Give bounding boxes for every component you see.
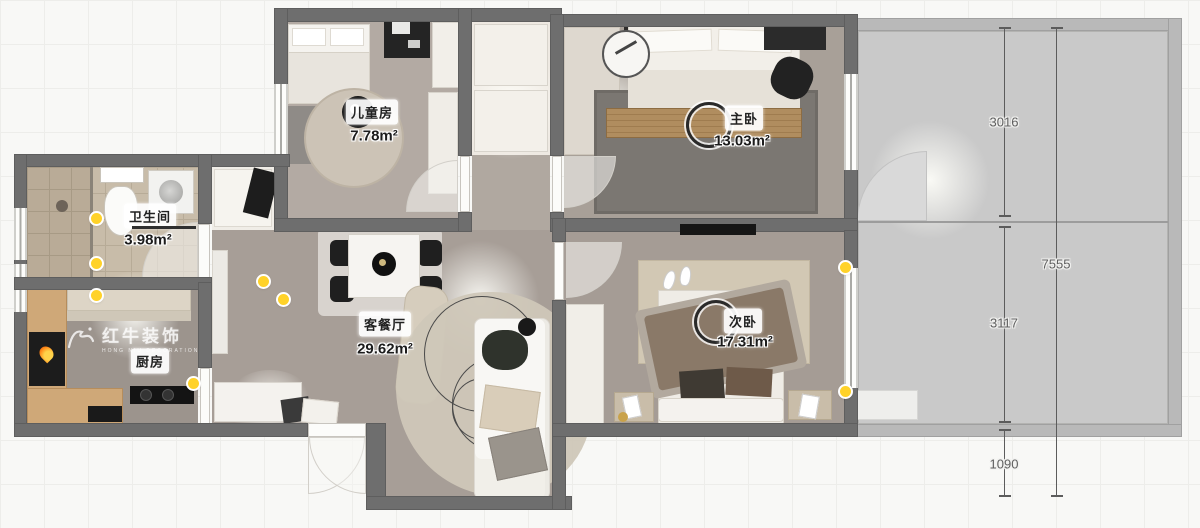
entry-door-sill <box>308 423 366 437</box>
room-area-kids: 7.78m² <box>350 128 398 145</box>
kids-bed-pillow <box>330 28 364 46</box>
light-dot <box>258 276 269 287</box>
bathroom-sink <box>100 167 144 183</box>
room-label-master: 主卧 <box>725 106 763 131</box>
window-bath-left <box>14 208 27 260</box>
wall-kids-right-lower <box>458 212 472 232</box>
annex-divider <box>858 221 1168 223</box>
kitchen-cabinet-band <box>67 311 191 321</box>
second-bed-pillow <box>679 369 725 402</box>
kitchen-appliance <box>88 406 122 422</box>
room-area-bath: 3.98m² <box>124 232 172 249</box>
annex-sill-block <box>856 390 918 420</box>
window-master-right <box>844 74 858 170</box>
nightstand-lamp <box>618 412 628 422</box>
brand-name: 红牛装饰 <box>102 322 199 347</box>
brand-watermark: 红牛装饰 HONG NIU DECORATION <box>66 322 199 354</box>
master-door-leaf <box>552 156 562 212</box>
second-wardrobe <box>566 304 604 424</box>
room-label-living: 客餐厅 <box>359 312 411 337</box>
light-dot <box>840 262 851 273</box>
second-bed-headboard <box>658 398 784 422</box>
dim-value-3117: 3117 <box>990 316 1018 331</box>
bath-label-underline <box>132 226 196 229</box>
wall-master-left-upper <box>550 14 564 156</box>
dim-tick <box>999 27 1011 29</box>
table-centerpiece-dot <box>379 259 386 266</box>
shower-head-icon <box>56 200 68 212</box>
cooktop-burner <box>162 389 174 401</box>
kitchen-slide-door <box>200 368 210 424</box>
room-area-second: 17.31m² <box>717 334 773 351</box>
dim-tick <box>1051 27 1063 29</box>
dim-tick <box>999 215 1011 217</box>
wall-second-left-lower <box>552 300 566 437</box>
kids-bed-pillow <box>292 28 326 46</box>
wall-kitchen-bottom <box>14 423 308 437</box>
shower-area <box>27 167 91 279</box>
kids-desk-item <box>392 22 410 34</box>
dining-chair <box>418 240 442 266</box>
wall-living-bottom <box>366 496 572 510</box>
light-dot <box>91 258 102 269</box>
light-dot <box>188 378 199 389</box>
wall-kids-top <box>274 8 562 22</box>
dim-tick <box>999 429 1011 431</box>
wall-master-top <box>550 14 858 27</box>
dim-value-7555: 7555 <box>1042 257 1071 272</box>
sofa-plant <box>482 330 528 370</box>
dim-tick <box>999 226 1011 228</box>
room-area-living: 29.62m² <box>357 341 413 358</box>
bath-door-leaf <box>198 224 210 280</box>
cooktop-burner <box>140 389 152 401</box>
bull-logo-icon <box>66 325 96 351</box>
light-dot <box>91 290 102 301</box>
room-label-kids: 儿童房 <box>346 100 398 125</box>
dim-tick <box>999 421 1011 423</box>
corridor-closet <box>474 24 548 86</box>
corridor-floor-lower <box>472 155 550 230</box>
room-label-bath: 卫生间 <box>124 204 176 229</box>
second-bed-pillow <box>725 367 772 397</box>
wall-second-left-upper <box>552 218 566 242</box>
wall-bath-bottom <box>14 277 212 290</box>
dim-tick <box>1051 495 1063 497</box>
wall-bath-top <box>14 154 290 167</box>
room-area-master: 13.03m² <box>714 133 770 150</box>
window-second-right <box>844 268 858 388</box>
window-kids-left <box>274 84 288 160</box>
dim-value-3016: 3016 <box>990 115 1019 130</box>
floor-plan: 儿童房 7.78m² 主卧 13.03m² 卫生间 3.98m² 客餐厅 29.… <box>0 0 1200 528</box>
light-dot <box>840 386 851 397</box>
kids-door-leaf <box>460 156 470 212</box>
dim-value-1090: 1090 <box>990 457 1019 472</box>
ceiling-fan-icon <box>602 30 650 78</box>
wall-second-bottom <box>552 423 858 437</box>
master-dresser <box>764 24 826 50</box>
entry-bench-item <box>301 398 339 426</box>
wall-duct <box>680 224 756 235</box>
room-label-second: 次卧 <box>724 309 762 334</box>
brand-name-en: HONG NIU DECORATION <box>102 348 199 354</box>
light-dot <box>278 294 289 305</box>
annex-wall-bottom <box>850 424 1182 437</box>
washing-machine-drum <box>159 180 183 204</box>
kids-desk-item <box>408 40 420 48</box>
dim-tick <box>999 495 1011 497</box>
tv-cabinet <box>212 250 228 354</box>
light-dot <box>91 213 102 224</box>
kitchen-counter-top <box>67 287 191 311</box>
second-door-leaf <box>554 242 564 300</box>
floor-lamp <box>518 318 536 336</box>
wall-kids-bottom <box>274 218 472 232</box>
annex-wall-top <box>850 18 1182 31</box>
annex-wall-right <box>1168 18 1182 437</box>
wall-bath-right-upper <box>198 154 212 224</box>
wall-kitchen-right-upper <box>198 282 212 368</box>
wall-kids-right-upper <box>458 8 472 156</box>
corridor-closet <box>474 90 548 152</box>
